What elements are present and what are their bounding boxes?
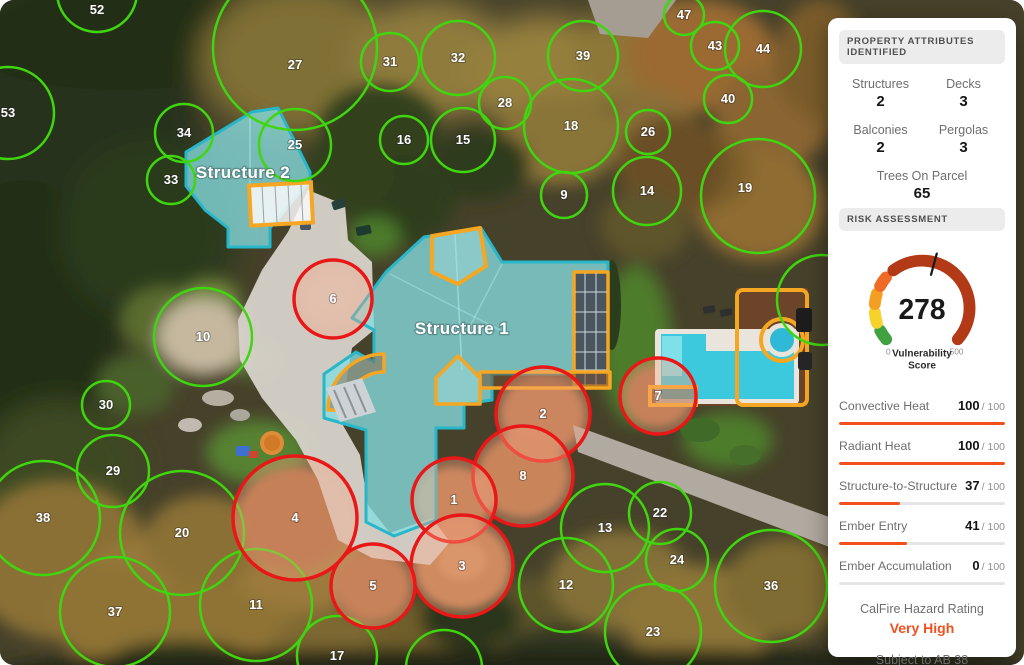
tree-marker-label: 13 — [598, 520, 612, 535]
gauge-max: 500 — [950, 348, 964, 357]
attribute-balconies: Balconies 2 — [839, 123, 922, 156]
vehicle — [798, 352, 812, 370]
tree-marker-label: 17 — [330, 648, 344, 663]
tree-marker-label: 2 — [539, 406, 546, 421]
tree-marker-label: 5 — [369, 578, 376, 593]
calfire-hazard-rating: CalFire Hazard Rating Very High — [839, 602, 1005, 636]
tree-marker-label: 10 — [196, 329, 210, 344]
tree-marker-label: 4 — [291, 510, 299, 525]
tree-marker-label: 29 — [106, 463, 120, 478]
tree-marker-label: 27 — [288, 57, 302, 72]
tree-marker-label: 11 — [249, 597, 263, 612]
gauge-segment — [875, 313, 877, 323]
tree-marker-label: 20 — [175, 525, 189, 540]
gauge-caption: Vulnerability — [892, 348, 952, 359]
metric-ember-entry: Ember Entry 41/ 100 — [839, 517, 1005, 545]
vulnerability-gauge: 278 0 500 Vulnerability Score — [839, 240, 1005, 385]
tree-marker-label: 26 — [641, 124, 655, 139]
structure-label: Structure 2 — [196, 163, 290, 182]
metric-structure-to-structure: Structure-to-Structure 37/ 100 — [839, 477, 1005, 505]
attributes-header: PROPERTY ATTRIBUTES IDENTIFIED — [839, 30, 1005, 64]
tree-marker-label: 34 — [177, 125, 192, 140]
tree-marker-label: 15 — [456, 132, 470, 147]
tree-marker-label: 37 — [108, 604, 122, 619]
conservatory — [574, 272, 608, 386]
tree-marker-label: 9 — [560, 187, 567, 202]
vehicle — [796, 308, 812, 332]
svg-text:Score: Score — [908, 360, 936, 371]
tree-marker-label: 53 — [1, 105, 15, 120]
attribute-structures: Structures 2 — [839, 77, 922, 110]
tree-marker-label: 16 — [397, 132, 411, 147]
risk-metrics: Convective Heat 100/ 100 Radiant Heat 10… — [839, 397, 1005, 585]
tree-marker-label: 12 — [559, 577, 573, 592]
app-screen: 5352273132394743444028182616153433259141… — [0, 0, 1024, 665]
structure-2-deck — [249, 182, 313, 225]
risk-header: RISK ASSESSMENT — [839, 208, 1005, 231]
gauge-value: 278 — [898, 293, 945, 325]
tree-marker-label: 44 — [756, 41, 771, 56]
metric-radiant-heat: Radiant Heat 100/ 100 — [839, 437, 1005, 465]
tree-marker-label: 14 — [640, 183, 655, 198]
tree-marker-label: 52 — [90, 2, 104, 17]
metric-ember-accumulation: Ember Accumulation 0/ 100 — [839, 557, 1005, 585]
tree-marker-label: 30 — [99, 397, 113, 412]
tree-marker-label: 8 — [519, 468, 526, 483]
tree-marker-label: 39 — [576, 48, 590, 63]
attribute-trees-on-parcel: Trees On Parcel 65 — [839, 169, 1005, 202]
tree-marker-label: 24 — [670, 552, 685, 567]
attribute-pergolas: Pergolas 3 — [922, 123, 1005, 156]
attributes-grid: Structures 2 Decks 3 Balconies 2 Pergola… — [839, 77, 1005, 202]
metric-convective-heat: Convective Heat 100/ 100 — [839, 397, 1005, 425]
tree-marker-label: 31 — [383, 54, 397, 69]
tree-marker-label: 40 — [721, 91, 735, 106]
tree-marker-label: 32 — [451, 50, 465, 65]
tree-marker-label: 7 — [654, 388, 661, 403]
tree-marker-label: 22 — [653, 505, 667, 520]
tree-marker-label: 33 — [164, 172, 178, 187]
analysis-panel: PROPERTY ATTRIBUTES IDENTIFIED Structure… — [828, 18, 1016, 657]
gauge-segment — [880, 331, 886, 340]
attribute-decks: Decks 3 — [922, 77, 1005, 110]
tree-marker-label: 19 — [738, 180, 752, 195]
tree-marker-label: 18 — [564, 118, 578, 133]
tree-marker-label: 6 — [329, 291, 336, 306]
play-mat — [236, 446, 250, 456]
tree-marker-label: 25 — [288, 137, 302, 152]
gauge-segment — [875, 294, 877, 304]
subject-to-ab38: Subject to AB 38 Yes — [839, 653, 1005, 665]
tree-marker-label: 28 — [498, 95, 512, 110]
tree-marker-label: 43 — [708, 38, 722, 53]
gauge-segment — [880, 277, 886, 286]
tree-marker-label: 1 — [450, 492, 457, 507]
tree-marker-label: 38 — [36, 510, 50, 525]
tree-marker-label: 23 — [646, 624, 660, 639]
gauge-min: 0 — [886, 348, 891, 357]
structure-label: Structure 1 — [415, 319, 509, 338]
tree-marker-label: 36 — [764, 578, 778, 593]
tree-marker-label: 3 — [458, 558, 465, 573]
tree-marker-label: 47 — [677, 7, 691, 22]
